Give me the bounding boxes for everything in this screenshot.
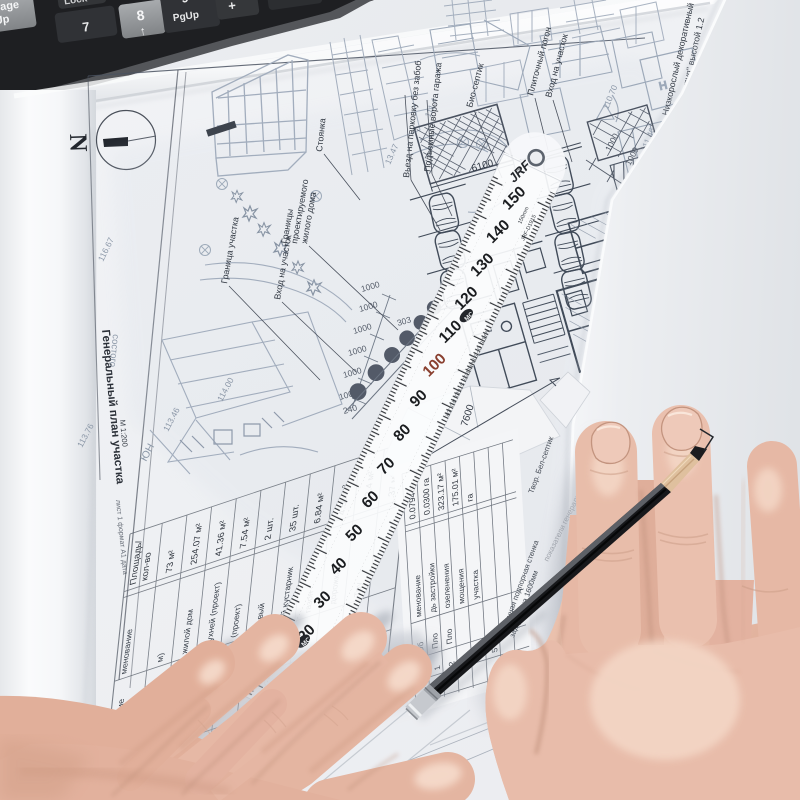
svg-text:дь застройки: дь застройки [428, 562, 438, 614]
svg-text:N: N [64, 133, 92, 152]
svg-text:323.17 м²: 323.17 м² [435, 471, 446, 511]
svg-text:9: 9 [180, 0, 189, 6]
svg-text:175.01 м²: 175.01 м² [450, 467, 461, 507]
svg-text:0.0300 га: 0.0300 га [421, 477, 432, 516]
svg-text:менование: менование [413, 573, 423, 618]
svg-text:мощения: мощения [457, 567, 467, 605]
svg-text:участка: участка [471, 569, 480, 601]
svg-text:озеленения: озеленения [442, 562, 452, 609]
svg-text:Пло: Пло [445, 627, 454, 645]
